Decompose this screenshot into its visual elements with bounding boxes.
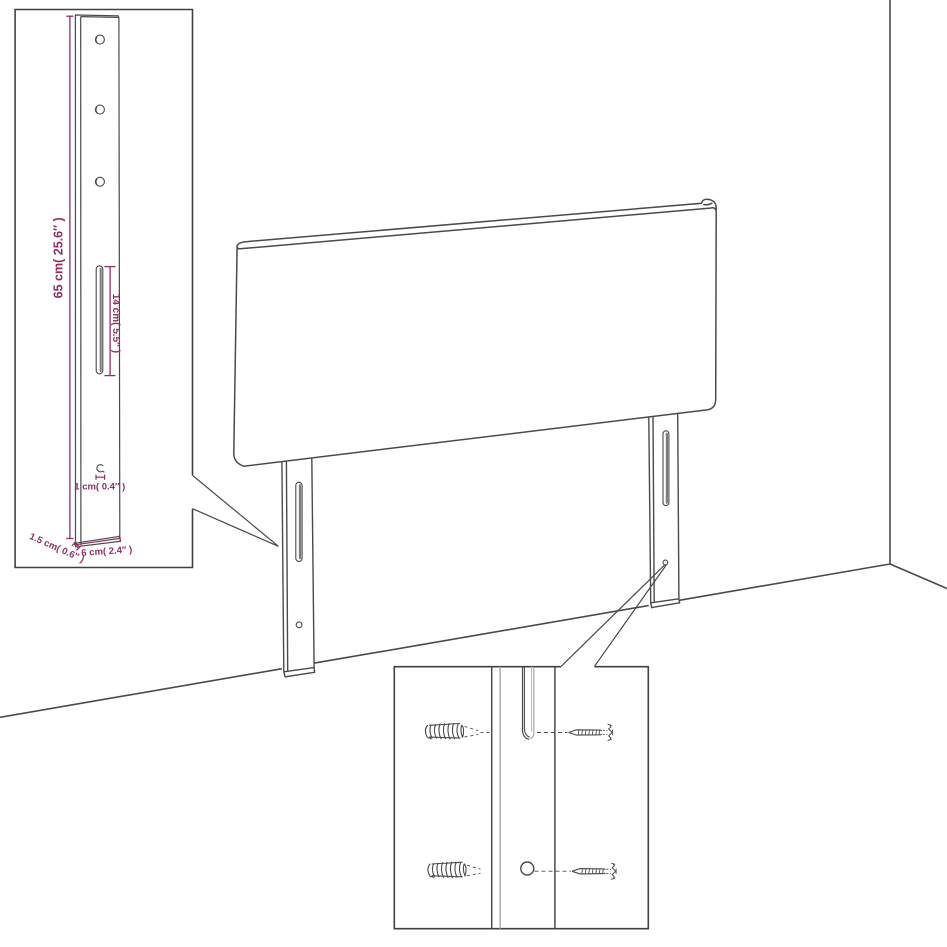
svg-text:1 cm( 0.4″ ): 1 cm( 0.4″ ) — [74, 481, 125, 492]
svg-text:65 cm( 25.6″ ): 65 cm( 25.6″ ) — [52, 217, 66, 298]
svg-text:14 cm( 5.5″ ): 14 cm( 5.5″ ) — [110, 294, 121, 353]
